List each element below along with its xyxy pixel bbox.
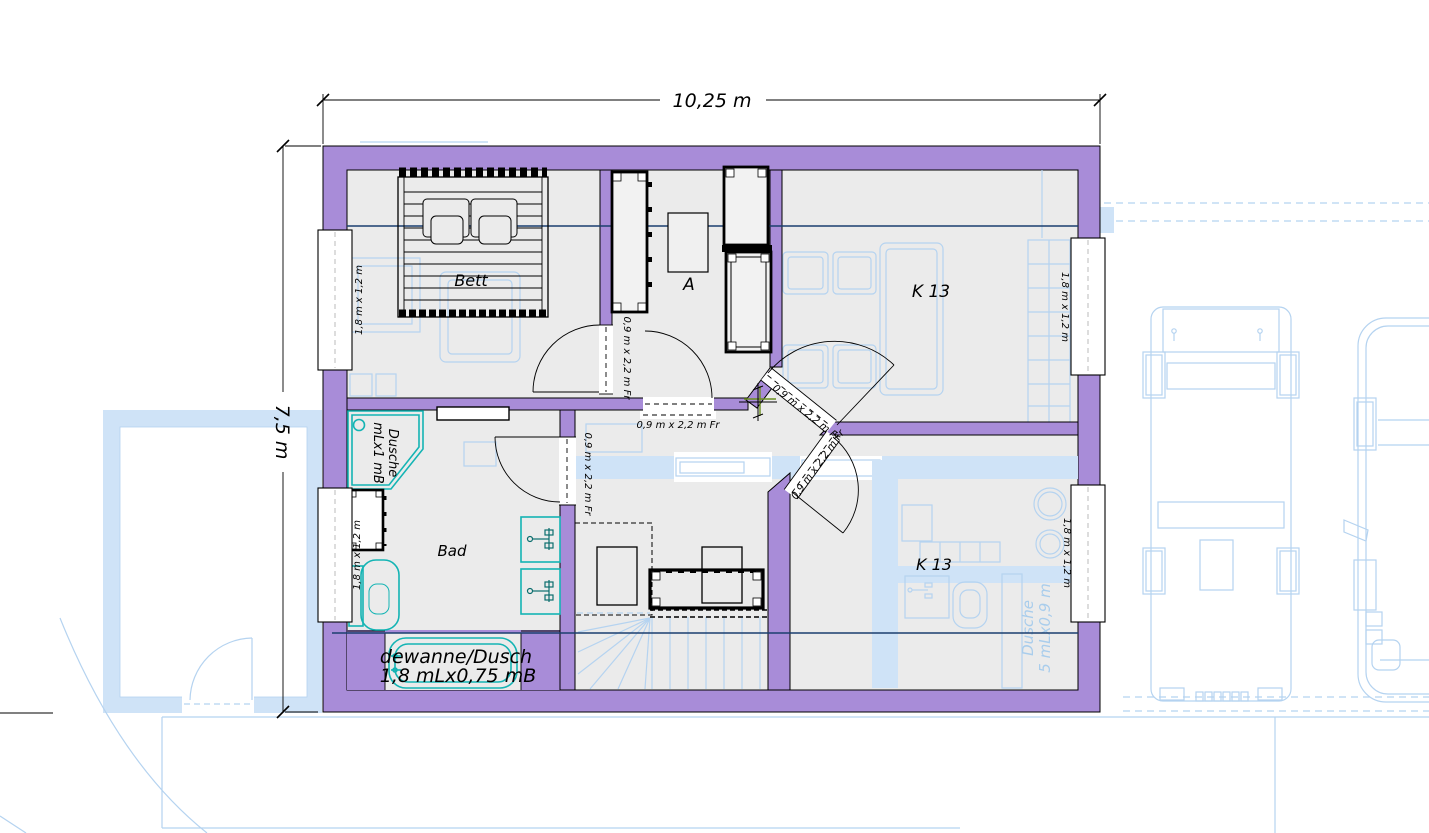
door-opening-hall — [640, 397, 716, 419]
shower-label-line2: mLx1 mB — [370, 422, 385, 484]
room-label-k13-bottom: K 13 — [916, 555, 952, 574]
window-label-right-top: 1,8 m x 1,2 m — [1059, 272, 1070, 342]
window-label-right-bottom: 1,8 m x 1,2 m — [1061, 518, 1072, 588]
underlay-car-1 — [1143, 307, 1299, 701]
room-label-bett: Bett — [454, 271, 488, 290]
dimension-left-label: 7,5 m — [271, 405, 293, 460]
window-label-left-bottom: 1,8 m x 1,2 m — [352, 520, 363, 590]
door-label-bett: 0,9 m x 2,2 m Fr — [621, 317, 632, 401]
underlay-shower-label-line2: 5 mLx0,9 m — [1036, 583, 1054, 672]
room-label-k13-top: K 13 — [912, 282, 950, 302]
room-label-hall: A — [682, 275, 695, 295]
bathtub-label-line2: 1,8 mLx0,75 mB — [380, 665, 536, 687]
underlay-shower-label-line1: Dusche — [1019, 600, 1037, 656]
door-opening-bad — [559, 437, 576, 505]
floor-plan-canvas: Dusche 5 mLx0,9 m — [0, 0, 1429, 833]
window-label-left-top: 1,8 m x 1,2 m — [354, 265, 365, 335]
door-label-bad: 0,9 m x 2,2 m Fr — [582, 433, 593, 517]
dimension-top: 10,25 m — [317, 90, 1106, 144]
floor-plan-page: Dusche 5 mLx0,9 m — [0, 0, 1429, 833]
dimension-top-label: 10,25 m — [673, 90, 752, 112]
underlay-car-2 — [1344, 318, 1429, 702]
door-opening-bett — [599, 325, 613, 394]
shower-label: Dusche mLx1 mB — [370, 422, 400, 484]
room-label-bad: Bad — [437, 542, 466, 560]
shower-label-line1: Dusche — [385, 429, 400, 477]
bath-shelf — [437, 407, 509, 420]
hall-table — [668, 213, 708, 272]
door-label-hall: 0,9 m x 2,2 m Fr — [637, 420, 721, 431]
